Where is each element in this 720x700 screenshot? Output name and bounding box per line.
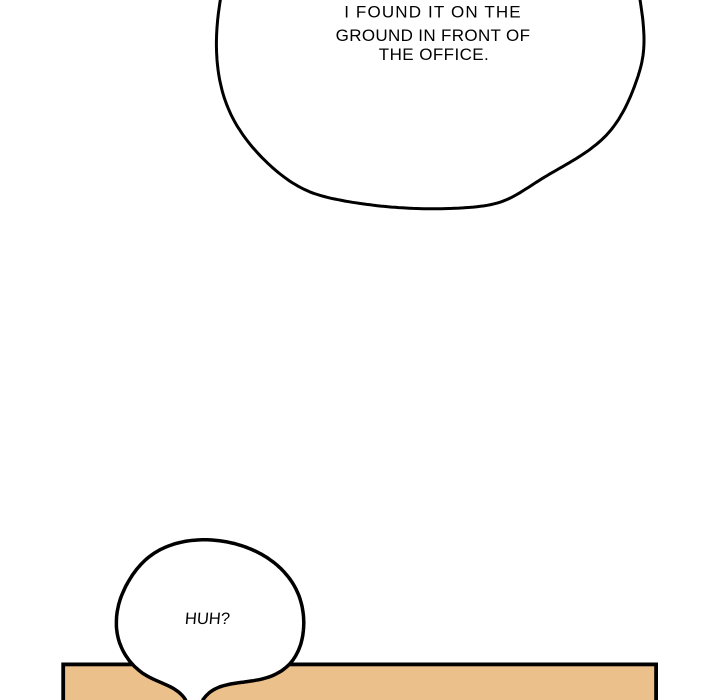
svg-text:I FOUND IT ON THE: I FOUND IT ON THE: [344, 3, 522, 22]
svg-text:THE OFFICE.: THE OFFICE.: [379, 45, 489, 64]
svg-text:GROUND IN FRONT OF: GROUND IN FRONT OF: [336, 26, 531, 45]
svg-text:HUH?: HUH?: [184, 609, 231, 628]
